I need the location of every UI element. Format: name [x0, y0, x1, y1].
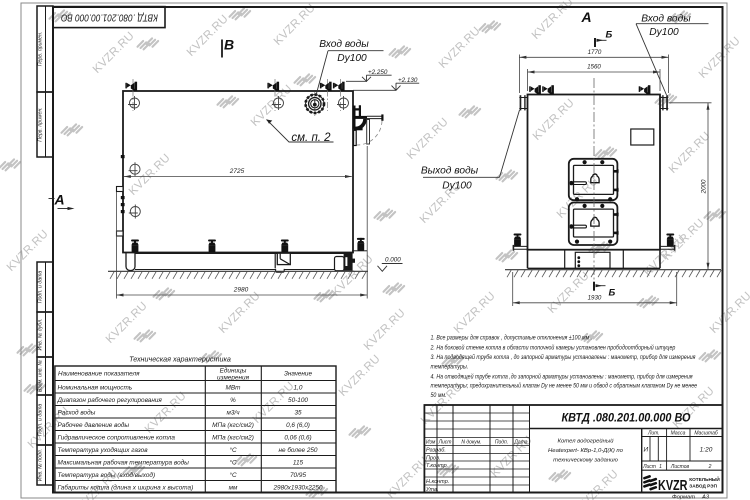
- svg-text:КВТД .080.201.00.000 ВО: КВТД .080.201.00.000 ВО: [61, 12, 158, 23]
- svg-text:В: В: [224, 36, 234, 52]
- svg-text:Лит.: Лит.: [647, 431, 660, 437]
- svg-text:Выход воды: Выход воды: [421, 166, 479, 177]
- svg-text:2980: 2980: [233, 287, 249, 294]
- svg-text:Единицы: Единицы: [220, 367, 247, 375]
- svg-text:35: 35: [294, 410, 302, 417]
- svg-text:1930: 1930: [588, 295, 602, 302]
- svg-text:0,6 (6,0): 0,6 (6,0): [286, 422, 310, 429]
- svg-text:мм: мм: [229, 485, 238, 492]
- svg-text:КВТД .080.201.00.000 ВО: КВТД .080.201.00.000 ВО: [562, 411, 692, 425]
- svg-text:50 мм.: 50 мм.: [431, 392, 447, 398]
- svg-text:Дата: Дата: [513, 440, 527, 446]
- svg-text:Dy100: Dy100: [442, 181, 472, 192]
- svg-text:2980х1930х2250: 2980х1930х2250: [272, 485, 322, 492]
- svg-text:Т.контр.: Т.контр.: [426, 463, 448, 469]
- svg-text:Утв.: Утв.: [425, 487, 439, 493]
- svg-text:Dy100: Dy100: [337, 53, 367, 64]
- svg-text:ЗАВОД РЭП: ЗАВОД РЭП: [689, 484, 717, 489]
- svg-text:Температура уходящих газов: Температура уходящих газов: [58, 446, 149, 454]
- svg-text:0.000: 0.000: [385, 257, 401, 264]
- svg-text:Значение: Значение: [284, 371, 312, 378]
- svg-text:0,06 (0,6): 0,06 (0,6): [284, 435, 311, 442]
- svg-text:температуры; предохранительный: температуры; предохранительный клапан Dу…: [431, 382, 698, 390]
- svg-text:N докум.: N докум.: [461, 440, 481, 446]
- svg-text:Масса: Масса: [671, 431, 686, 437]
- svg-text:Гидравлическое сопротивление к: Гидравлическое сопротивление котла: [58, 434, 176, 442]
- svg-text:2000: 2000: [701, 179, 708, 194]
- svg-text:Максимальная рабочая температу: Максимальная рабочая температура воды: [58, 459, 190, 467]
- svg-text:Подп. и дата: Подп. и дата: [38, 271, 44, 304]
- svg-text:Взам. инв. №: Взам. инв. №: [38, 360, 44, 392]
- svg-text:Подп. и дата: Подп. и дата: [38, 404, 44, 437]
- svg-text:КОТЕЛЬНЫЙ: КОТЕЛЬНЫЙ: [689, 475, 720, 482]
- svg-text:Н.контр.: Н.контр.: [426, 479, 449, 485]
- svg-text:%: %: [230, 397, 236, 404]
- svg-text:Диапазон рабочего регулировани: Диапазон рабочего регулирования: [57, 396, 163, 404]
- svg-text:1,0: 1,0: [294, 385, 303, 392]
- svg-text:+2.130: +2.130: [398, 77, 418, 84]
- svg-text:KVZR: KVZR: [658, 478, 688, 494]
- svg-text:Масштаб: Масштаб: [694, 431, 718, 437]
- svg-text:Расход воды: Расход воды: [58, 409, 96, 417]
- svg-text:А: А: [54, 192, 65, 208]
- svg-text:Вход воды: Вход воды: [319, 39, 369, 50]
- svg-text:МПа (кгс/см2): МПа (кгс/см2): [212, 435, 254, 442]
- svg-text:2725: 2725: [229, 168, 245, 175]
- svg-text:Листов: Листов: [670, 464, 690, 470]
- svg-text:°С: °С: [229, 471, 237, 479]
- svg-text:не более 250: не более 250: [278, 446, 317, 454]
- svg-text:50-100: 50-100: [288, 397, 308, 404]
- svg-text:Dy100: Dy100: [649, 27, 679, 38]
- svg-text:Температура воды (вход/выход): Температура воды (вход/выход): [58, 471, 156, 479]
- svg-text:Подп.: Подп.: [495, 440, 508, 446]
- svg-text:Б: Б: [609, 288, 616, 299]
- svg-text:А: А: [581, 9, 592, 25]
- svg-text:1770: 1770: [588, 49, 602, 56]
- svg-text:Heatexpert- КВр-1,0-Д(К) по: Heatexpert- КВр-1,0-Д(К) по: [548, 448, 624, 454]
- svg-text:МПа (кгс/см2): МПа (кгс/см2): [212, 422, 254, 429]
- svg-text:Наименование показателя: Наименование показателя: [58, 371, 140, 378]
- svg-text:115: 115: [293, 460, 304, 467]
- svg-text:температуры.: температуры.: [431, 364, 469, 370]
- svg-text:4. На отводящей трубе котла ,: 4. На отводящей трубе котла ,до запорной…: [431, 373, 693, 381]
- svg-text:И: И: [643, 447, 648, 454]
- svg-text:1:20: 1:20: [700, 447, 713, 454]
- svg-text:2: 2: [708, 464, 712, 470]
- svg-text:1: 1: [659, 464, 662, 470]
- svg-text:2. На боковой стенке котла в: 2. На боковой стенке котла в области топ…: [430, 344, 676, 352]
- svg-text:Габариты котла (длина х ширина: Габариты котла (длина х ширина х высота): [58, 484, 194, 492]
- svg-text:Перв. примен.: Перв. примен.: [38, 32, 44, 66]
- svg-text:3. На подводящей трубе котла: 3. На подводящей трубе котла , до запорн…: [431, 354, 696, 362]
- svg-text:А3: А3: [701, 494, 710, 500]
- svg-text:МВт: МВт: [226, 385, 242, 392]
- svg-text:Номинальная мощность: Номинальная мощность: [58, 385, 133, 392]
- svg-text:Рабочее давление воды: Рабочее давление воды: [58, 421, 130, 429]
- svg-text:1. Все размеры для справок ,: 1. Все размеры для справок , допустимые …: [431, 335, 593, 341]
- svg-text:Инв. № подл.: Инв. № подл.: [38, 449, 44, 481]
- svg-text:измерения: измерения: [217, 375, 250, 382]
- svg-text:°С: °С: [229, 446, 237, 454]
- svg-text:Б: Б: [606, 30, 613, 41]
- svg-text:м3/ч: м3/ч: [226, 410, 240, 417]
- svg-text:Лист: Лист: [438, 440, 452, 446]
- svg-text:Лист: Лист: [642, 464, 656, 470]
- svg-text:1560: 1560: [587, 64, 601, 71]
- svg-text:Вход воды: Вход воды: [641, 14, 691, 25]
- svg-text:Формат: Формат: [672, 494, 695, 500]
- svg-text:Инв. № дубл.: Инв. № дубл.: [38, 319, 44, 351]
- svg-text:Техническая характеристика: Техническая характеристика: [129, 355, 231, 364]
- svg-text:техническому заданию: техническому заданию: [553, 458, 618, 464]
- svg-text:Изм: Изм: [426, 440, 436, 446]
- svg-text:Пров.: Пров.: [426, 456, 441, 462]
- svg-text:Разраб.: Разраб.: [426, 448, 446, 454]
- svg-text:Котел водогрейный: Котел водогрейный: [557, 438, 614, 445]
- svg-text:°С: °С: [229, 459, 237, 467]
- svg-text:+2.250: +2.250: [368, 69, 388, 76]
- svg-text:Перв. примен.: Перв. примен.: [38, 107, 44, 141]
- svg-text:70/95: 70/95: [290, 472, 306, 479]
